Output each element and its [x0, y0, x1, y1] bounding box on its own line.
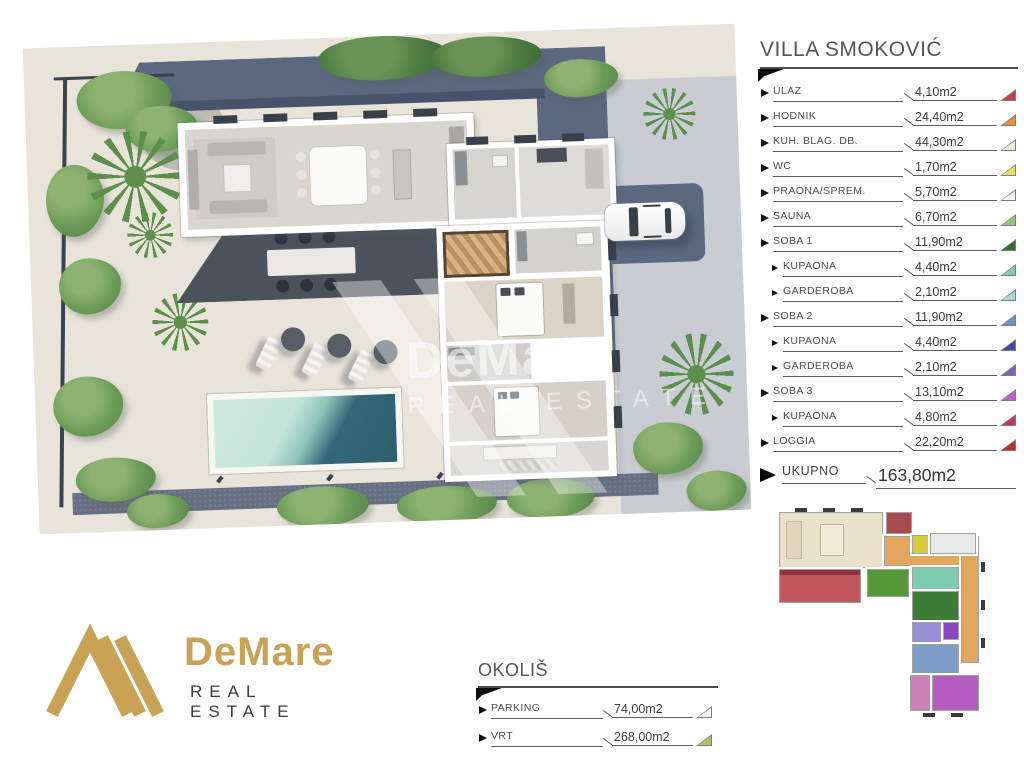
row-arrow-icon [772, 290, 778, 296]
leader-line [904, 293, 913, 300]
color-swatch [1000, 214, 1016, 226]
mini-sofa [787, 522, 801, 558]
row-arrow-icon [772, 340, 778, 346]
row-arrow-icon [761, 214, 769, 222]
roof-edge [612, 350, 621, 372]
outdoor-table [267, 247, 356, 276]
roof-edge [608, 238, 617, 260]
color-swatch [1000, 339, 1016, 351]
color-swatch [1000, 89, 1016, 101]
room-label: WC [773, 160, 791, 172]
legend-row: SOBA 313,10m2 [760, 381, 1018, 406]
counter [585, 148, 604, 189]
total-area: 163,80m2 [876, 465, 960, 489]
legend-row: LOGGIA22,20m2 [760, 431, 1018, 456]
row-arrow-icon [761, 439, 769, 447]
area-label: VRT [491, 730, 513, 742]
roof-edge [263, 113, 287, 122]
room-label: GARDEROBA [783, 285, 854, 297]
kitchen-island [394, 150, 412, 199]
room-area: 11,90m2 [913, 235, 966, 251]
sofa [207, 141, 265, 156]
leader-line [904, 343, 913, 350]
legend-row: ULAZ4,10m2 [760, 81, 1018, 106]
row-arrow-icon [761, 139, 769, 147]
color-swatch [1000, 289, 1016, 301]
row-arrow-icon [761, 239, 769, 247]
room-label: GARDEROBA [783, 360, 854, 372]
mini-wall-dash [951, 713, 963, 717]
bush [126, 493, 189, 529]
bush [52, 375, 124, 437]
mini-room-kupaona1 [913, 568, 958, 589]
car [605, 202, 686, 242]
roof-edge [614, 406, 623, 428]
room-area: 6,70m2 [913, 210, 960, 226]
row-arrow-icon [761, 164, 769, 172]
mini-dining-table [821, 525, 843, 555]
surroundings-legend: OKOLIŠ PARKING74,00m2 VRT268,00m2 [478, 660, 718, 754]
chair [296, 170, 306, 180]
mini-room-kupaona3 [911, 676, 931, 710]
chair [297, 188, 307, 198]
row-arrow-icon [761, 314, 769, 322]
legend-row: PRAONA/SPREM.5,70m2 [760, 181, 1018, 206]
color-swatch [1000, 189, 1016, 201]
living-dining-kitchen [177, 113, 477, 237]
chair [369, 149, 379, 159]
row-arrow-icon [772, 415, 778, 421]
total-label: UKUPNO [782, 464, 839, 478]
mini-wall-dash [981, 638, 985, 648]
site-plan-render: DeMare REAL ESTATE [25, 22, 767, 542]
legend-row: GARDEROBA2,10m2 [760, 356, 1018, 381]
room-area: 4,40m2 [913, 260, 960, 276]
chair [370, 167, 380, 177]
brand-logo: DeMare REAL ESTATE [46, 616, 376, 741]
color-swatch [696, 706, 712, 718]
sofa [209, 199, 267, 214]
room-area: 4,80m2 [913, 410, 960, 426]
row-arrow-icon [479, 706, 487, 714]
page: DeMare REAL ESTATE VILLA SMOKOVIĆ ULAZ4,… [0, 0, 1024, 768]
mini-room-garderoba2 [944, 623, 958, 639]
room-area: 1,70m2 [913, 160, 960, 176]
surroundings-rows: PARKING74,00m2 VRT268,00m2 [478, 698, 718, 754]
legend-row: KUH. BLAG. DB.44,30m2 [760, 131, 1018, 156]
brand-tagline: REAL ESTATE [190, 682, 376, 722]
room-label: SOBA 2 [773, 310, 813, 322]
dining-table [309, 146, 367, 206]
mini-room-soba2 [913, 645, 958, 673]
chair [296, 152, 306, 162]
brand-name: DeMare [184, 630, 335, 675]
room-label: PRAONA/SPREM. [773, 185, 866, 197]
chair [371, 185, 381, 195]
toilet [493, 156, 507, 166]
stool [300, 279, 313, 292]
laundry-room [518, 144, 610, 217]
washing-machine [537, 148, 567, 163]
mini-loggia-rail [780, 570, 860, 575]
garden-light [326, 474, 333, 482]
coffee-table [224, 165, 251, 192]
color-swatch [1000, 264, 1016, 276]
color-swatch [1000, 389, 1016, 401]
area-value: 74,00m2 [612, 702, 666, 718]
garden-light [216, 475, 223, 483]
color-swatch [1000, 414, 1016, 426]
surroundings-title: OKOLIŠ [478, 660, 718, 681]
mini-wall-dash [795, 508, 807, 512]
leader-line [904, 368, 913, 375]
room-legend: VILLA SMOKOVIĆ ULAZ4,10m2 HODNIK24,40m2 … [760, 38, 1018, 502]
room-label: KUH. BLAG. DB. [773, 135, 858, 147]
roof-edge [413, 108, 437, 117]
legend-row: SOBA 111,90m2 [760, 231, 1018, 256]
leader-line [904, 393, 913, 400]
mini-room-kupaona2 [913, 623, 942, 642]
toilet [577, 233, 593, 245]
stool [276, 279, 289, 292]
room-label: KUPAONA [783, 260, 836, 272]
leader-line [866, 476, 876, 484]
row-arrow-icon [761, 389, 769, 397]
legend-row: SAUNA6,70m2 [760, 206, 1018, 231]
vanity [516, 231, 527, 261]
row-arrow-icon [761, 114, 769, 122]
leader-line [904, 443, 913, 450]
room-area: 4,40m2 [913, 335, 960, 351]
color-swatch [1000, 114, 1016, 126]
mini-room-soba3 [933, 676, 978, 710]
watermark-logo-mark [331, 273, 609, 502]
area-value: 268,00m2 [612, 730, 673, 746]
leader-line [904, 143, 913, 150]
roof-edge [313, 112, 337, 121]
legend-row: WC1,70m2 [760, 156, 1018, 181]
legend-row: GARDEROBA2,10m2 [760, 281, 1018, 306]
legend-row: SOBA 211,90m2 [760, 306, 1018, 331]
legend-row: PARKING74,00m2 [478, 698, 718, 726]
roof-edge [466, 136, 488, 145]
row-arrow-icon [772, 365, 778, 371]
color-swatch [1000, 239, 1016, 251]
leader-line [904, 93, 913, 100]
legend-rows: ULAZ4,10m2 HODNIK24,40m2 KUH. BLAG. DB.4… [760, 81, 1018, 456]
room-label: KUPAONA [783, 410, 836, 422]
legend-row: KUPAONA4,40m2 [760, 256, 1018, 281]
row-arrow-icon [772, 265, 778, 271]
title-rule [760, 67, 1018, 69]
shower [455, 151, 468, 185]
color-swatch [1000, 139, 1016, 151]
room-area: 4,10m2 [913, 85, 960, 101]
room-area: 13,10m2 [913, 385, 967, 401]
legend-row: KUPAONA4,40m2 [760, 331, 1018, 356]
brand-logo-mark [46, 622, 171, 722]
palm-tree-icon [127, 211, 175, 259]
room-area: 5,70m2 [913, 185, 960, 201]
room-area: 11,90m2 [913, 310, 966, 326]
mini-wall-dash [981, 600, 985, 610]
roof-edge [610, 294, 619, 316]
roof-edge [363, 110, 387, 119]
room-area: 22,20m2 [913, 435, 967, 451]
room-area: 24,40m2 [913, 110, 967, 126]
plot-ground: DeMare REAL ESTATE [23, 24, 752, 535]
leader-line [904, 318, 913, 325]
mini-wall-dash [981, 562, 985, 572]
leader-line [904, 243, 913, 250]
roof-edge [562, 133, 584, 142]
legend-row: KUPAONA4,80m2 [760, 406, 1018, 431]
room-label: SOBA 3 [773, 385, 813, 397]
row-arrow-icon [479, 734, 487, 742]
room-label: LOGGIA [773, 435, 816, 447]
title-rule [478, 686, 718, 688]
room-label: KUPAONA [783, 335, 836, 347]
total-arrow-icon [760, 468, 776, 482]
legend-title: VILLA SMOKOVIĆ [760, 38, 1018, 62]
bathroom [514, 227, 601, 274]
roof-edge [213, 115, 237, 124]
leader-line [904, 418, 913, 425]
color-swatch [1000, 364, 1016, 376]
mini-room-soba1 [913, 592, 958, 620]
utility-rooms [446, 138, 617, 228]
mini-wall-dash [823, 508, 835, 512]
legend-row: HODNIK24,40m2 [760, 106, 1018, 131]
leader-line [603, 738, 612, 745]
room-label: SAUNA [773, 210, 811, 222]
area-label: PARKING [491, 702, 540, 714]
mini-room-sauna [868, 570, 908, 596]
room-label: SOBA 1 [773, 235, 813, 247]
mini-floorplan [773, 492, 1023, 727]
roof-edge [514, 135, 536, 144]
room-label: HODNIK [773, 110, 816, 122]
leader-line [904, 193, 913, 200]
row-arrow-icon [761, 189, 769, 197]
bush [58, 257, 122, 315]
leader-line [904, 218, 913, 225]
staircase [442, 230, 510, 278]
room-label: ULAZ [773, 85, 801, 97]
color-swatch [1000, 314, 1016, 326]
mini-room-wc [913, 536, 928, 553]
leader-line [603, 710, 612, 717]
leader-line [904, 168, 913, 175]
row-arrow-icon [761, 89, 769, 97]
mini-room-ulaz [887, 513, 911, 533]
leader-line [904, 268, 913, 275]
mini-room-praona [931, 534, 975, 553]
bathroom [453, 147, 517, 219]
room-area: 44,30m2 [913, 135, 967, 151]
mini-wall-dash [923, 713, 935, 717]
color-swatch [1000, 164, 1016, 176]
color-swatch [696, 734, 712, 746]
mini-room-hodnik [962, 537, 978, 662]
tv-cabinet [187, 150, 199, 210]
room-area: 2,10m2 [913, 285, 960, 301]
mini-wall-dash [851, 508, 863, 512]
room-area: 2,10m2 [913, 360, 960, 376]
legend-row: VRT268,00m2 [478, 726, 718, 754]
color-swatch [1000, 439, 1016, 451]
umbrella [281, 327, 306, 352]
leader-line [904, 118, 913, 125]
